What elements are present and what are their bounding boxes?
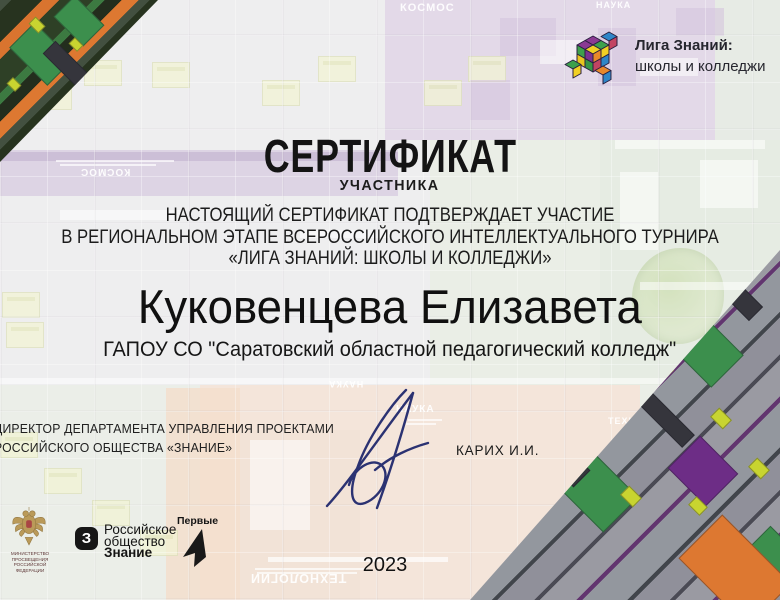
ministry-caption-line1: МИНИСТЕРСТВО ПРОСВЕЩЕНИЯ [0,551,60,562]
league-logo: Лига Знаний: школы и колледжи [563,24,780,94]
recipient-name-text: Куковенцева Елизавета [138,279,642,334]
bg-label-nauka-top: НАУКА [596,0,631,10]
coat-of-arms-icon [10,503,48,549]
corner-chip [668,436,739,507]
recipient-organization-text: ГАПОУ СО "Саратовский областной педагоги… [103,338,676,362]
znanie-logo-text: Российское общество Знание [104,524,176,559]
corner-chip [748,458,770,480]
certificate-body: НАСТОЯЩИЙ СЕРТИФИКАТ ПОДТВЕРЖДАЕТ УЧАСТИ… [47,205,733,270]
pervye-logo-label: Первые [177,515,218,527]
ministry-caption: МИНИСТЕРСТВО ПРОСВЕЩЕНИЯ РОССИЙСКОЙ ФЕДЕ… [0,551,60,573]
signatory-name: КАРИХ И.И. [456,443,539,458]
znanie-line3: Знание [104,547,176,559]
league-logo-line2: школы и колледжи [635,58,765,75]
certificate-title: СЕРТИФИКАТ [0,129,780,183]
corner-chip [7,77,22,92]
bg-label-kosmos: КОСМОС [400,2,455,14]
corner-chip [678,514,780,600]
signature-ink [320,384,438,516]
recipient-name: Куковенцева Елизавета [0,279,780,334]
signatory-title: ДИРЕКТОР ДЕПАРТАМЕНТА УПРАВЛЕНИЯ ПРОЕКТА… [0,420,334,457]
body-line-2: В РЕГИОНАЛЬНОМ ЭТАПЕ ВСЕРОССИЙСКОГО ИНТЕ… [47,227,733,249]
corner-chip [710,408,732,430]
certificate-subtitle: УЧАСТНИКА [0,177,780,194]
certificate-page: КОСМОС КОСМОС НАУКА НАУКА НАУКА ТЕХНОЛОГ… [0,0,780,600]
ministry-caption-line2: РОССИЙСКОЙ ФЕДЕРАЦИИ [0,562,60,573]
league-logo-line1: Лига Знаний: [635,37,733,54]
znanie-letter: З [82,530,91,547]
body-line-3: «ЛИГА ЗНАНИЙ: ШКОЛЫ И КОЛЛЕДЖИ» [47,248,733,270]
signatory-title-line2: РОССИЙСКОГО ОБЩЕСТВА «ЗНАНИЕ» [0,439,334,458]
certificate-year: 2023 [325,554,445,577]
signatory-title-line1: ДИРЕКТОР ДЕПАРТАМЕНТА УПРАВЛЕНИЯ ПРОЕКТА… [0,420,334,439]
znanie-logo-icon: З [75,527,98,550]
pervye-arrow-icon [181,528,211,568]
corner-chip [54,0,105,46]
certificate-subtitle-text: УЧАСТНИКА [340,177,440,194]
signature [320,384,438,521]
certificate-title-text: СЕРТИФИКАТ [263,129,516,183]
recipient-organization: ГАПОУ СО "Саратовский областной педагоги… [0,338,780,362]
body-line-1: НАСТОЯЩИЙ СЕРТИФИКАТ ПОДТВЕРЖДАЕТ УЧАСТИ… [47,205,733,227]
league-cube-icon [563,24,627,88]
